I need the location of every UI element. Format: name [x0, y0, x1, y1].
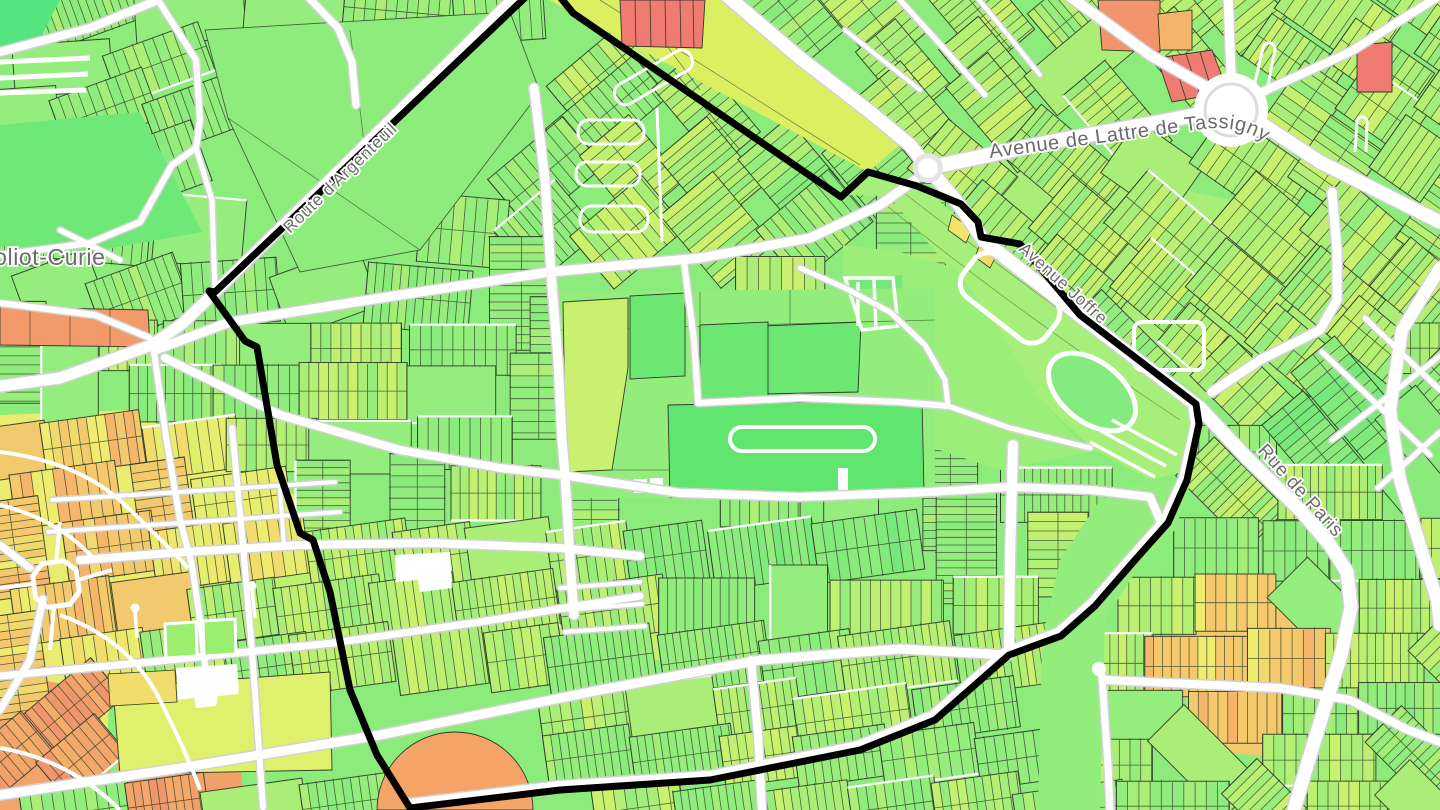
svg-text:Joliot-Curie: Joliot-Curie	[0, 244, 106, 270]
